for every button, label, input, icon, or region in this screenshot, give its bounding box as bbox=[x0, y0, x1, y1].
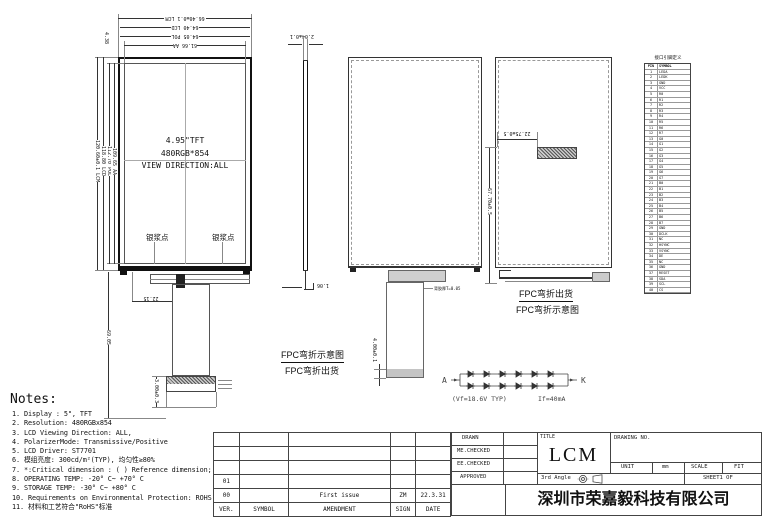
revision-row bbox=[214, 433, 450, 447]
pin-symbol: NC bbox=[658, 260, 690, 265]
leader-line bbox=[154, 242, 155, 264]
pin-symbol: R5 bbox=[658, 120, 690, 125]
cathode-label: K bbox=[581, 376, 586, 385]
pin-number: 28 bbox=[645, 221, 658, 226]
me-checked-label: ME.CHECKED bbox=[457, 448, 490, 455]
dim-thickness: 2.04±0.1 bbox=[289, 33, 315, 39]
pin-symbol: B7 bbox=[658, 221, 690, 226]
pin-number: 35 bbox=[645, 260, 658, 265]
leader-line bbox=[424, 288, 433, 289]
drawing-no-label: DRAWING NO. bbox=[614, 435, 650, 442]
drawn-label: DRAWN bbox=[462, 435, 479, 442]
pin-symbol: G6 bbox=[658, 170, 690, 175]
pin-number: 36 bbox=[645, 265, 658, 270]
pin-symbol: SDA bbox=[658, 277, 690, 282]
pin-symbol: B4 bbox=[658, 204, 690, 209]
pin-number: 39 bbox=[645, 282, 658, 287]
revision-date: 22.3.31 bbox=[416, 489, 450, 502]
revision-amendment bbox=[289, 475, 390, 488]
pin-number: 13 bbox=[645, 137, 658, 142]
notes-heading: Notes: bbox=[10, 392, 57, 407]
extension-line bbox=[374, 378, 386, 379]
revision-sign: ZM bbox=[391, 489, 417, 502]
unit-value: mm bbox=[662, 464, 669, 471]
dim-connector-height: 3.00±0.3 bbox=[153, 379, 159, 403]
pin-number: 17 bbox=[645, 159, 658, 164]
pin-symbol: R7 bbox=[658, 131, 690, 136]
revision-amendment bbox=[289, 461, 390, 474]
panel-foot bbox=[474, 268, 480, 272]
fit-label: FIT bbox=[734, 464, 744, 471]
pin-table: PIN SYMBOL 1 LEDA 2 LEDK 3 GND 4 VCC 5 R… bbox=[644, 63, 691, 294]
pin-number: 5 bbox=[645, 92, 658, 97]
pin-number: 20 bbox=[645, 176, 658, 181]
pin-symbol: CS bbox=[658, 288, 690, 293]
revision-ver bbox=[214, 447, 240, 460]
dim-line bbox=[309, 44, 323, 45]
fpc-bend-note-line2: FPC弯折出货 bbox=[285, 366, 339, 377]
drawing-sheet: 4.95"TFT 480RGB*854 VIEW DIRECTION:ALL 银… bbox=[0, 0, 768, 522]
dim-aa-width: 61.66 AA bbox=[173, 42, 197, 48]
projection-angle-label: 3rd Angle bbox=[541, 475, 571, 482]
revision-row bbox=[214, 461, 450, 475]
pin-number: 30 bbox=[645, 232, 658, 237]
pin-number: 9 bbox=[645, 114, 658, 119]
fpc-bend-note-line1: FPC弯折示意图 bbox=[281, 350, 344, 363]
grid-line bbox=[652, 462, 653, 473]
revision-amendment bbox=[289, 433, 390, 446]
back-view-bottom-bar bbox=[348, 266, 482, 268]
pin-number: 23 bbox=[645, 193, 658, 198]
dim-fpc-offset: 22.15 bbox=[143, 295, 159, 301]
pin-symbol: B0 bbox=[658, 181, 690, 186]
dim-lcd-width: 64.40 LCD bbox=[171, 24, 199, 30]
pin-number: 18 bbox=[645, 165, 658, 170]
fpc-tail bbox=[172, 284, 210, 376]
grid-line bbox=[722, 462, 723, 473]
anode-label: A bbox=[442, 376, 447, 385]
pin-symbol: NC bbox=[658, 237, 690, 242]
pin-number: 33 bbox=[645, 249, 658, 254]
revision-row: 00 First issue ZM 22.3.31 bbox=[214, 489, 450, 503]
pin-symbol: R6 bbox=[658, 126, 690, 131]
pin-number: 22 bbox=[645, 187, 658, 192]
pin-number: 34 bbox=[645, 254, 658, 259]
pin-symbol: VSYNC bbox=[658, 249, 690, 254]
grid-line bbox=[537, 473, 762, 474]
backlight-circuit: A K (Vf=18.6V TYP) If=40mA bbox=[440, 368, 592, 404]
revision-symbol bbox=[240, 461, 290, 474]
panel-resolution-text: 480RGB*854 bbox=[130, 148, 240, 161]
revision-date bbox=[416, 461, 450, 474]
revision-amendment: First issue bbox=[289, 489, 390, 502]
pin-symbol: G3 bbox=[658, 154, 690, 159]
note-item: 8. OPERATING TEMP: -20° C~ +70° C bbox=[12, 475, 222, 484]
pin-symbol: VCC bbox=[658, 86, 690, 91]
extension-line bbox=[374, 369, 386, 370]
revision-table: 01 00 First issue ZM 22.3.31 VER. SYMBOL… bbox=[213, 432, 451, 517]
extension-line bbox=[251, 14, 252, 57]
dim-fpc-x: 22.75±0.5 bbox=[503, 130, 531, 136]
scale-label: SCALE bbox=[691, 464, 708, 471]
pin-symbol: R0 bbox=[658, 92, 690, 97]
revision-symbol: SYMBOL bbox=[240, 503, 290, 516]
revision-row bbox=[214, 447, 450, 461]
pin-symbol: B5 bbox=[658, 209, 690, 214]
pin-number: 14 bbox=[645, 142, 658, 147]
extension-line bbox=[118, 14, 119, 57]
pin-number: 31 bbox=[645, 237, 658, 242]
fpc-bond-area bbox=[537, 147, 577, 159]
pin-symbol: SCL bbox=[658, 282, 690, 287]
grid-line bbox=[451, 458, 537, 459]
revision-ver bbox=[214, 461, 240, 474]
note-item: 9. STORAGE TEMP: -30° C~ +80° C bbox=[12, 484, 222, 493]
third-angle-symbol bbox=[577, 474, 605, 484]
revision-ver: 01 bbox=[214, 475, 240, 488]
revision-date: DATE bbox=[416, 503, 450, 516]
pin-number: 40 bbox=[645, 288, 658, 293]
grid-line bbox=[684, 462, 685, 484]
pin-symbol: R3 bbox=[658, 109, 690, 114]
extension-line bbox=[485, 283, 497, 284]
dim-total-height: 69.05 bbox=[105, 330, 111, 345]
pin-symbol: B2 bbox=[658, 193, 690, 198]
extension-line bbox=[152, 376, 166, 377]
pin-symbol: GND bbox=[658, 81, 690, 86]
title-label: TITLE bbox=[540, 434, 555, 441]
revision-symbol bbox=[240, 489, 290, 502]
pin-symbol: R4 bbox=[658, 114, 690, 119]
extension-line bbox=[303, 36, 304, 60]
extension-line bbox=[485, 147, 497, 148]
grid-line bbox=[610, 462, 762, 463]
revision-sign: SIGN bbox=[391, 503, 417, 516]
folded-fpc-hook bbox=[499, 270, 511, 271]
revision-symbol bbox=[240, 447, 290, 460]
connector-outline bbox=[166, 392, 167, 407]
note-item: 4. PolarizerMode: Transmissive/Positive bbox=[12, 438, 222, 447]
ee-checked-label: EE.CHECKED bbox=[457, 461, 490, 468]
pin-symbol: G5 bbox=[658, 165, 690, 170]
notes-list: 1. Display : 5", TFT2. Resolution: 480RG… bbox=[12, 410, 222, 512]
pin-number: 12 bbox=[645, 131, 658, 136]
extension-line bbox=[95, 270, 118, 271]
side-fpc-bend bbox=[305, 270, 306, 289]
side-fpc-bend bbox=[313, 283, 314, 290]
pin-table-title: 接口引脚定义 bbox=[640, 56, 696, 62]
pin-symbol: G1 bbox=[658, 142, 690, 147]
dim-line bbox=[282, 287, 302, 288]
pin-symbol: G4 bbox=[658, 159, 690, 164]
panel-foot bbox=[120, 271, 127, 275]
pin-number: 11 bbox=[645, 126, 658, 131]
leader-line bbox=[218, 380, 232, 381]
pin-number: 29 bbox=[645, 226, 658, 231]
pin-number: 21 bbox=[645, 181, 658, 186]
pin-table-row: 40 CS bbox=[645, 288, 690, 294]
pin-number: 38 bbox=[645, 277, 658, 282]
pin-symbol: HSYNC bbox=[658, 243, 690, 248]
pin-symbol: DE bbox=[658, 254, 690, 259]
pin-number: 8 bbox=[645, 109, 658, 114]
extension-line bbox=[307, 36, 308, 60]
revision-row: 01 bbox=[214, 475, 450, 489]
pin-symbol: LEDA bbox=[658, 70, 690, 75]
dim-fpc-y: 67.70±0.5 bbox=[486, 188, 492, 215]
revision-sign bbox=[391, 433, 417, 446]
revision-amendment bbox=[289, 447, 390, 460]
dim-line bbox=[288, 44, 302, 45]
revision-row: VER. SYMBOL AMENDMENT SIGN DATE bbox=[214, 503, 450, 517]
revision-symbol bbox=[240, 475, 290, 488]
fpc-flat-on-back bbox=[388, 270, 446, 282]
pin-number: 26 bbox=[645, 209, 658, 214]
pin-number: 10 bbox=[645, 120, 658, 125]
approved-label: APPROVED bbox=[460, 474, 487, 481]
pin-symbol: GND bbox=[658, 226, 690, 231]
pin-symbol: DCLK bbox=[658, 232, 690, 237]
pin-table-body: 1 LEDA 2 LEDK 3 GND 4 VCC 5 R0 6 R1 7 R2 bbox=[645, 70, 690, 294]
pin-number: 4 bbox=[645, 86, 658, 91]
drawing-title: LCM bbox=[537, 443, 610, 467]
pin-number: 32 bbox=[645, 243, 658, 248]
pin-number: 6 bbox=[645, 98, 658, 103]
note-item: 7. *:Critical dimension : ( ) Reference … bbox=[12, 466, 222, 475]
vf-spec: (Vf=18.6V TYP) bbox=[452, 395, 507, 403]
grid-line bbox=[451, 484, 762, 485]
note-item: 11. 材料和工艺符合"RoHS"标准 bbox=[12, 503, 222, 512]
pin-number: 15 bbox=[645, 148, 658, 153]
connector-outline bbox=[216, 392, 217, 407]
dim-lcm-width: 66.40±0.1 LCM bbox=[164, 15, 206, 21]
revision-sign bbox=[391, 475, 417, 488]
note-item: 2. Resolution: 480RGBx854 bbox=[12, 419, 222, 428]
pin-number: 3 bbox=[645, 81, 658, 86]
note-item: 10. Requirements on Environmental Protec… bbox=[12, 494, 222, 503]
revision-date bbox=[416, 475, 450, 488]
dim-line bbox=[497, 139, 537, 140]
pin-number: 1 bbox=[645, 70, 658, 75]
folded-fpc-inner bbox=[505, 281, 593, 282]
revision-date bbox=[416, 447, 450, 460]
revision-amendment: AMENDMENT bbox=[289, 503, 390, 516]
fpc-ship-note-line2: FPC弯折示意图 bbox=[516, 305, 579, 316]
note-item: 6. 模组亮度: 300cd/m²(TYP), 均匀性≥80% bbox=[12, 456, 222, 465]
pin-symbol: G0 bbox=[658, 137, 690, 142]
side-view-edge bbox=[307, 60, 308, 270]
pin-symbol: B6 bbox=[658, 215, 690, 220]
gold-finger-band bbox=[167, 377, 215, 384]
view-direction-text: VIEW DIRECTION:ALL bbox=[130, 160, 240, 173]
pin-number: 2 bbox=[645, 75, 658, 80]
pin-number: 27 bbox=[645, 215, 658, 220]
back-view-tape-outline bbox=[351, 60, 479, 265]
pin-symbol: B3 bbox=[658, 198, 690, 203]
grid-line bbox=[610, 432, 611, 473]
grid-line bbox=[451, 471, 537, 472]
pin-number: 16 bbox=[645, 154, 658, 159]
pin-number: 37 bbox=[645, 271, 658, 276]
leader-line bbox=[222, 242, 223, 264]
pin-symbol: LEDK bbox=[658, 75, 690, 80]
connector-outline bbox=[166, 407, 216, 408]
pin-symbol: B1 bbox=[658, 187, 690, 192]
adhesive-callout: 背胶厚T=0.05 bbox=[434, 286, 460, 291]
pin-number: 24 bbox=[645, 198, 658, 203]
symbol-col-header: SYMBOL bbox=[658, 64, 690, 69]
pin-number: 25 bbox=[645, 204, 658, 209]
panel-foot bbox=[350, 268, 356, 272]
revision-ver: VER. bbox=[214, 503, 240, 516]
side-view-cap bbox=[303, 60, 308, 61]
pin-symbol: R1 bbox=[658, 98, 690, 103]
silver-paste-dot-label-right: 银浆点 bbox=[212, 232, 235, 243]
dim-stiffener: 4.00±0.1 bbox=[371, 338, 377, 362]
fpc-inner-line bbox=[150, 279, 250, 280]
leader-line bbox=[218, 384, 232, 385]
revision-sign bbox=[391, 461, 417, 474]
pin-symbol: RESET bbox=[658, 271, 690, 276]
revision-sign bbox=[391, 447, 417, 460]
panel-bottom-bar bbox=[118, 266, 252, 271]
pin-symbol: R2 bbox=[658, 103, 690, 108]
revision-ver: 00 bbox=[214, 489, 240, 502]
sheet-label: SHEET1 OF bbox=[703, 475, 733, 482]
dim-side-bottom: 1.06 bbox=[316, 282, 330, 288]
note-item: 1. Display : 5", TFT bbox=[12, 410, 222, 419]
pin-symbol: G7 bbox=[658, 176, 690, 181]
dim-pol-width: 64.05 POL bbox=[171, 33, 199, 39]
extension-line bbox=[95, 57, 118, 58]
dim-aa-height: 109.65 AA bbox=[111, 148, 117, 175]
note-item: 3. LCD Viewing Direction: ALL, bbox=[12, 429, 222, 438]
dim-top-border: 4.38 bbox=[103, 32, 109, 44]
pin-symbol: G2 bbox=[658, 148, 690, 153]
dim-line bbox=[132, 301, 172, 302]
revision-ver bbox=[214, 433, 240, 446]
company-name: 深圳市荣嘉毅科技有限公司 bbox=[505, 488, 762, 512]
folded-fpc-end bbox=[592, 272, 610, 282]
dim-line bbox=[379, 364, 380, 386]
pin-number: 7 bbox=[645, 103, 658, 108]
unit-label: UNIT bbox=[621, 464, 634, 471]
fpc-ship-note-line1: FPC弯折出货 bbox=[519, 289, 573, 302]
front-view-spec-text: 4.95"TFT 480RGB*854 VIEW DIRECTION:ALL bbox=[130, 135, 240, 173]
pin-symbol: GND bbox=[658, 265, 690, 270]
extension-line bbox=[152, 407, 166, 408]
extension-line bbox=[537, 132, 538, 147]
silver-paste-dot-label-left: 银浆点 bbox=[146, 232, 169, 243]
fpc-stiffener bbox=[387, 369, 423, 377]
extension-line bbox=[132, 272, 133, 301]
if-spec: If=40mA bbox=[538, 395, 565, 403]
leader-line bbox=[218, 388, 232, 389]
folded-fpc-hook bbox=[499, 270, 500, 278]
side-view-edge bbox=[303, 60, 304, 270]
revision-symbol bbox=[240, 433, 290, 446]
grid-line bbox=[451, 445, 537, 446]
pin-number: 19 bbox=[645, 170, 658, 175]
back-view-folded-tape bbox=[498, 60, 609, 265]
panel-size-text: 4.95"TFT bbox=[130, 135, 240, 148]
fpc-tail-back bbox=[386, 282, 424, 378]
pin-col-header: PIN bbox=[645, 64, 658, 69]
revision-date bbox=[416, 433, 450, 446]
